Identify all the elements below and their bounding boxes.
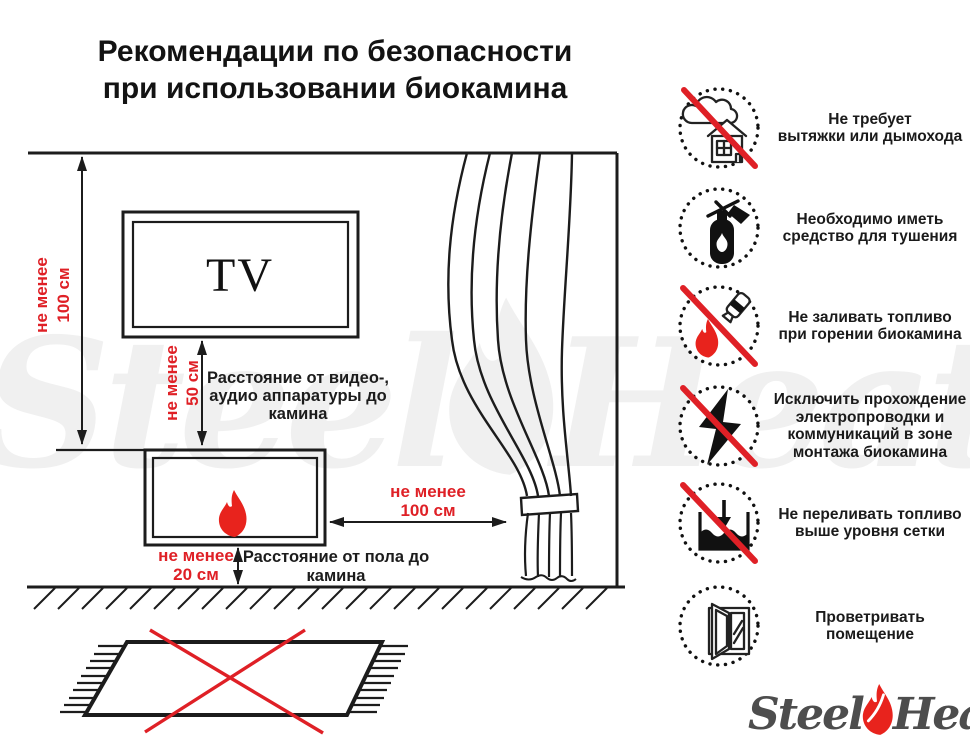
rule-ventilate: Проветривать помещение	[672, 579, 970, 673]
rule-text: Не переливать топливо выше уровня сетки	[770, 506, 970, 541]
page-title-line2: при использовании биокамина	[20, 70, 650, 107]
dimension-fireplace-to-curtain: не менее 100 см	[330, 482, 506, 522]
rule-text: Не требует вытяжки или дымохода	[770, 111, 970, 146]
rule-no-refuel: Не заливать топливо при горении биокамин…	[672, 279, 970, 373]
rule-no-overfill: Не переливать топливо выше уровня сетки	[672, 476, 970, 570]
house-smoke-crossed-icon	[672, 81, 766, 175]
dim-value: 100 см	[400, 501, 455, 520]
carpet-crossed-out	[60, 630, 408, 733]
rule-text: Необходимо иметь средство для тушения	[770, 211, 970, 246]
tv: TV	[123, 212, 358, 337]
dim-value: 100 см	[54, 267, 73, 322]
curtain	[448, 153, 578, 581]
tv-caption-line2: аудио аппаратуры до	[209, 387, 387, 405]
dim-label: не менее	[32, 257, 51, 333]
dimension-wall-to-fireplace: не менее 100 см	[32, 157, 145, 450]
rule-text: Проветривать помещение	[770, 609, 970, 644]
dimension-floor-to-fireplace: не менее 20 см Расстояние от пола до кам…	[158, 546, 429, 585]
flame-icon	[219, 490, 247, 537]
carpet-fringe-right	[349, 646, 408, 712]
steelheat-logo: Steel Heat	[748, 684, 970, 744]
rule-no-chimney: Не требует вытяжки или дымохода	[672, 81, 970, 175]
page-title-line1: Рекомендации по безопасности	[20, 33, 650, 70]
tv-label: TV	[206, 249, 274, 302]
tv-caption-line3: камина	[269, 405, 329, 423]
rule-text: Не заливать топливо при горении биокамин…	[770, 309, 970, 344]
dim-label: не менее	[390, 482, 466, 501]
floor-caption-line1: Расстояние от пола до	[243, 548, 429, 566]
logo-word-heat: Heat	[893, 689, 970, 740]
tv-caption-line1: Расстояние от видео-,	[207, 369, 389, 387]
floor-caption-line2: камина	[307, 567, 367, 585]
rule-extinguisher: Необходимо иметь средство для тушения	[672, 181, 970, 275]
dim-value: 20 см	[173, 565, 219, 584]
lightning-crossed-icon	[672, 379, 766, 473]
fuel-bottle-flame-crossed-icon	[672, 279, 766, 373]
rule-text: Исключить прохождение электропроводки и …	[770, 391, 970, 461]
dim-label: не менее	[158, 546, 234, 565]
dim-value: 50 см	[183, 360, 202, 406]
dim-label: не менее	[162, 345, 181, 421]
room-diagram: TV не менее 100 см не менее 50 см Рассто…	[0, 140, 640, 749]
fireplace	[145, 450, 325, 545]
rule-no-wiring: Исключить прохождение электропроводки и …	[672, 379, 970, 473]
floor-hatching	[34, 588, 607, 609]
page-title: Рекомендации по безопасности при использ…	[20, 33, 650, 107]
dimension-tv-to-fireplace: не менее 50 см Расстояние от видео-, ауд…	[162, 341, 389, 445]
red-cross	[145, 630, 323, 733]
logo-flame-icon	[860, 684, 894, 736]
curtain-tieback	[521, 494, 578, 515]
logo-word-steel: Steel	[748, 689, 863, 740]
fire-extinguisher-icon	[672, 181, 766, 275]
fuel-tank-crossed-icon	[672, 476, 766, 570]
open-window-icon	[672, 579, 766, 673]
